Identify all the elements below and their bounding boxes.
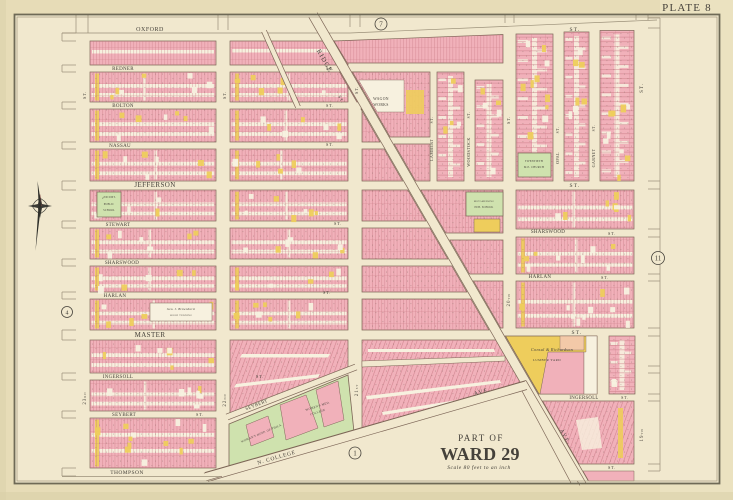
svg-text:BOLTON: BOLTON	[112, 104, 134, 109]
svg-text:MOYAMENSING: MOYAMENSING	[474, 200, 494, 203]
svg-text:OXFORD: OXFORD	[136, 27, 164, 33]
svg-text:ST.: ST.	[608, 231, 616, 236]
svg-text:ST.: ST.	[326, 103, 334, 108]
svg-text:WORKS: WORKS	[373, 103, 388, 107]
svg-text:WARD 29: WARD 29	[440, 444, 520, 464]
svg-text:NASSAU: NASSAU	[109, 144, 131, 149]
svg-text:ST.: ST.	[256, 374, 264, 379]
svg-text:WAGON: WAGON	[373, 97, 389, 101]
svg-text:ST.: ST.	[640, 83, 645, 93]
svg-text:ST.: ST.	[570, 183, 581, 189]
svg-text:MASTER: MASTER	[135, 331, 166, 339]
svg-text:ST.: ST.	[82, 91, 87, 99]
svg-text:REDNER: REDNER	[112, 67, 134, 72]
svg-text:ST.: ST.	[467, 112, 471, 119]
svg-text:HARLAN: HARLAN	[529, 275, 552, 280]
svg-text:STEWART: STEWART	[106, 223, 131, 228]
svg-text:TWENTIETH: TWENTIETH	[525, 160, 543, 163]
svg-text:Geo. J. Brownhurst: Geo. J. Brownhurst	[167, 307, 195, 311]
svg-text:ST.: ST.	[556, 127, 560, 134]
svg-text:HARLAN: HARLAN	[104, 294, 127, 299]
svg-text:ST.: ST.	[608, 465, 616, 470]
svg-text:GARNET: GARNET	[591, 148, 596, 167]
svg-text:Consul & Richardson: Consul & Richardson	[531, 347, 573, 352]
svg-text:Scale 80 feet to an inch: Scale 80 feet to an inch	[447, 464, 510, 471]
svg-text:4: 4	[66, 311, 69, 317]
svg-text:ST.: ST.	[572, 330, 583, 336]
svg-text:1: 1	[353, 450, 357, 458]
svg-text:PART OF: PART OF	[458, 433, 504, 443]
svg-text:ST.: ST.	[326, 142, 334, 147]
svg-text:ST.: ST.	[621, 395, 629, 400]
svg-text:OPAL: OPAL	[555, 152, 560, 164]
svg-text:M.E. CHURCH: M.E. CHURCH	[524, 166, 544, 169]
svg-text:PUB. SCHOOL: PUB. SCHOOL	[475, 206, 494, 209]
svg-text:INGERSOLL: INGERSOLL	[103, 375, 133, 380]
svg-text:ST.: ST.	[592, 125, 596, 132]
svg-text:LAMBERT: LAMBERT	[429, 139, 434, 161]
svg-text:ST.: ST.	[430, 117, 434, 124]
svg-text:SHARSWOOD: SHARSWOOD	[105, 261, 139, 266]
svg-text:PLATE 8: PLATE 8	[662, 2, 712, 14]
svg-text:WOOD TURNING: WOOD TURNING	[170, 314, 192, 317]
svg-text:PUBLIC: PUBLIC	[104, 203, 114, 206]
svg-text:ST.: ST.	[334, 221, 342, 226]
svg-text:7: 7	[379, 21, 383, 29]
svg-text:WOODSTOCK: WOODSTOCK	[466, 137, 471, 166]
svg-text:JEFFERSON: JEFFERSON	[134, 181, 175, 189]
svg-text:SEYBERT: SEYBERT	[112, 413, 136, 418]
svg-text:ST.: ST.	[570, 27, 581, 33]
svg-text:ST.: ST.	[323, 290, 331, 295]
svg-text:THOMPSON: THOMPSON	[110, 470, 143, 476]
svg-text:ST.: ST.	[601, 275, 609, 280]
svg-text:11: 11	[655, 255, 662, 263]
svg-text:SHARSWOOD: SHARSWOOD	[531, 230, 565, 235]
svg-text:ST.: ST.	[506, 116, 511, 124]
svg-text:INGERSOLL: INGERSOLL	[569, 396, 598, 401]
svg-text:LUMBER YARD: LUMBER YARD	[533, 358, 561, 362]
svg-text:ST.: ST.	[222, 91, 227, 99]
svg-text:ST.: ST.	[196, 412, 204, 417]
svg-text:ST.: ST.	[354, 86, 359, 94]
svg-text:SCHOOL: SCHOOL	[103, 209, 115, 212]
